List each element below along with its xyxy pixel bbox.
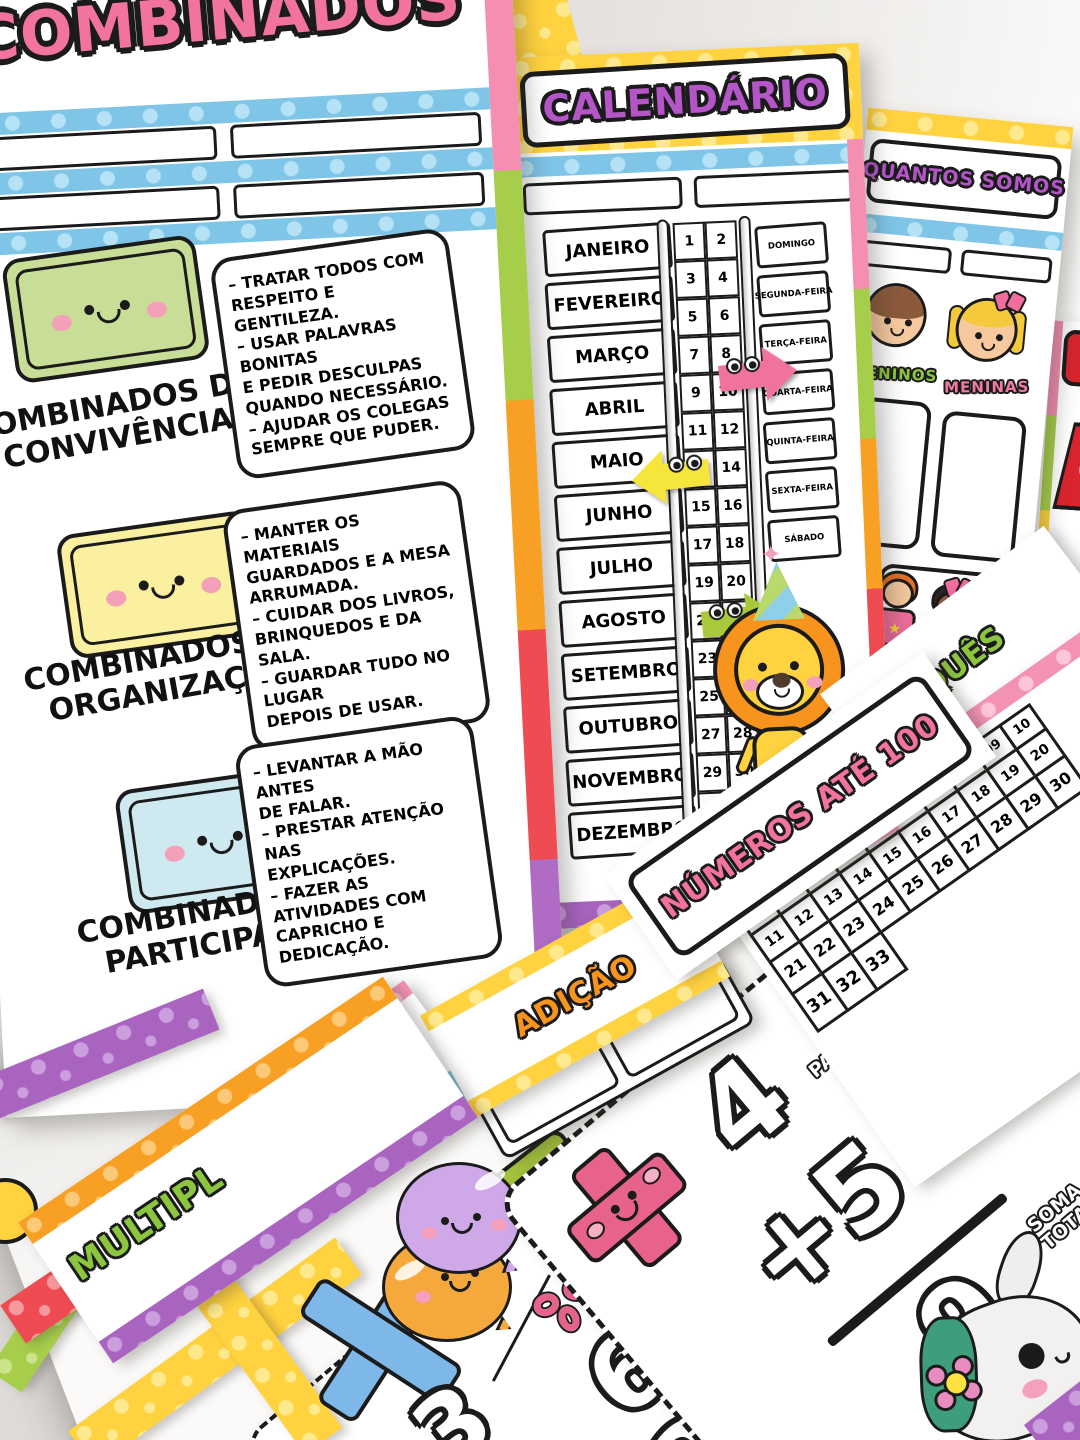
day-number-cell: 5 — [676, 298, 710, 337]
month-cell: ABRIL — [549, 380, 680, 436]
day-number-cell: 2 — [704, 220, 738, 259]
lion-muzzle — [755, 673, 805, 711]
day-number-cell: 7 — [677, 336, 711, 375]
day-number-cell: 9 — [679, 374, 713, 413]
day-number-cell: 17 — [686, 525, 720, 564]
cheek — [491, 1219, 507, 1231]
lion-eye — [790, 661, 799, 670]
highlight — [472, 1165, 508, 1194]
day-number-cell: 1 — [673, 222, 707, 261]
trapezoid-shape — [1052, 421, 1080, 513]
section-participacao: COMBINADOS DE PARTICIPAÇÃO – LEVANTAR A … — [0, 725, 537, 1023]
smile — [890, 328, 905, 337]
month-cell: NOVEMBRO — [565, 751, 696, 807]
quantos-title: QUANTOS SOMOS — [862, 158, 1066, 199]
eye — [975, 332, 983, 340]
empty-slot — [523, 177, 683, 216]
rules-text: – MANTER OS MATERIAIS GUARDADOS E A MESA… — [221, 478, 493, 753]
rules-text: – TRATAR TODOS COM RESPEITO E GENTILEZA.… — [209, 227, 478, 481]
ticket-icon-green — [1, 234, 211, 385]
ticket-eye — [84, 304, 95, 315]
ticket-cheek — [200, 576, 222, 595]
lion-smile — [774, 688, 790, 698]
weekday-arrow-icon — [716, 343, 800, 405]
ticket-eye — [138, 580, 149, 591]
month-cell: JULHO — [556, 539, 687, 595]
day-number-cell: 16 — [716, 486, 750, 525]
ticket-cheek — [105, 589, 127, 608]
lion-eye — [758, 662, 767, 671]
month-cell: OUTUBRO — [563, 698, 694, 754]
weekday-cell: SEGUNDA-FEIRA — [756, 270, 831, 318]
hat-star: ✦ — [759, 540, 782, 571]
ticket-eye — [232, 830, 243, 841]
day-number-cell: 3 — [674, 260, 708, 299]
ticket-cheek — [146, 300, 168, 319]
ticket-eye — [174, 575, 185, 586]
month-cell: JANEIRO — [542, 222, 673, 278]
meninas-count-box — [930, 410, 1028, 563]
eye — [441, 1217, 449, 1225]
day-number-cell: 4 — [706, 258, 740, 297]
cheek — [421, 1227, 437, 1239]
arrow-shape — [716, 343, 800, 405]
classroom-photo: COMBINADOS COMBINADOS DE CONVIVÊNCIA – T… — [0, 0, 1080, 1440]
section-organizacao: COMBINADOS DE ORGANIZAÇÃO – MANTER OS MA… — [0, 476, 522, 749]
quantos-title-box: QUANTOS SOMOS — [865, 138, 1062, 220]
boy-hair — [863, 280, 929, 321]
empty-slot — [859, 240, 952, 275]
section-convivencia: COMBINADOS DE CONVIVÊNCIA – TRATAR TODOS… — [0, 226, 509, 499]
trapezoid-fill — [1056, 425, 1080, 509]
ticket-eye — [197, 835, 208, 846]
eye — [905, 319, 913, 327]
ticket-smile — [151, 584, 177, 600]
smile — [449, 1281, 471, 1292]
smile — [981, 342, 996, 351]
plus-sign-character — [539, 1119, 715, 1295]
month-cell: FEVEREIRO — [544, 274, 675, 330]
shapes-banner: T — [1061, 329, 1080, 389]
eye — [996, 334, 1004, 342]
ticket-cheek — [164, 844, 186, 863]
hair-bow-icon — [994, 289, 1026, 312]
poster-combinados: COMBINADOS COMBINADOS DE CONVIVÊNCIA – T… — [0, 0, 570, 1118]
month-cell: AGOSTO — [558, 592, 689, 648]
ticket-smile — [97, 309, 123, 325]
weekday-cell: DOMINGO — [754, 221, 829, 269]
lion-cheek — [806, 676, 823, 689]
eye — [884, 317, 892, 325]
lion-nose — [772, 672, 791, 688]
boy-face — [862, 280, 930, 350]
meninas-label: MENINAS — [944, 378, 1028, 397]
weekday-cell: QUINTA-FEIRA — [763, 417, 838, 465]
boy-head — [862, 280, 930, 350]
empty-slot — [960, 249, 1053, 284]
combinados-title: COMBINADOS — [0, 0, 487, 78]
arrow-shape — [629, 445, 713, 507]
empty-slot — [693, 169, 853, 208]
ticket-smile — [210, 839, 236, 855]
label-slots — [523, 169, 854, 215]
purple-balloon — [396, 1162, 522, 1274]
month-cell: MARÇO — [547, 327, 678, 383]
day-number-cell: 18 — [718, 524, 752, 563]
girl-head — [953, 295, 1021, 365]
month-arrow-icon — [629, 445, 713, 507]
weekday-cell: SEXTA-FEIRA — [765, 466, 840, 514]
ticket-cheek — [51, 314, 73, 333]
day-number-cell: 6 — [708, 296, 742, 335]
smile — [451, 1223, 473, 1234]
ticket-eye — [119, 299, 130, 310]
cheek — [415, 1291, 431, 1303]
party-hat — [750, 561, 804, 621]
day-number-cell: 12 — [713, 410, 747, 449]
calendar-title: CALENDÁRIO — [541, 70, 829, 131]
day-number-cell: 14 — [714, 448, 748, 487]
day-number-cell: 11 — [681, 412, 715, 451]
eye — [473, 1213, 481, 1221]
eye — [441, 1273, 449, 1281]
month-cell: SETEMBRO — [561, 645, 692, 701]
addend-top: 4 — [678, 1038, 810, 1174]
rules-text: – LEVANTAR A MÃO ANTES DE FALAR. – PREST… — [233, 714, 505, 989]
